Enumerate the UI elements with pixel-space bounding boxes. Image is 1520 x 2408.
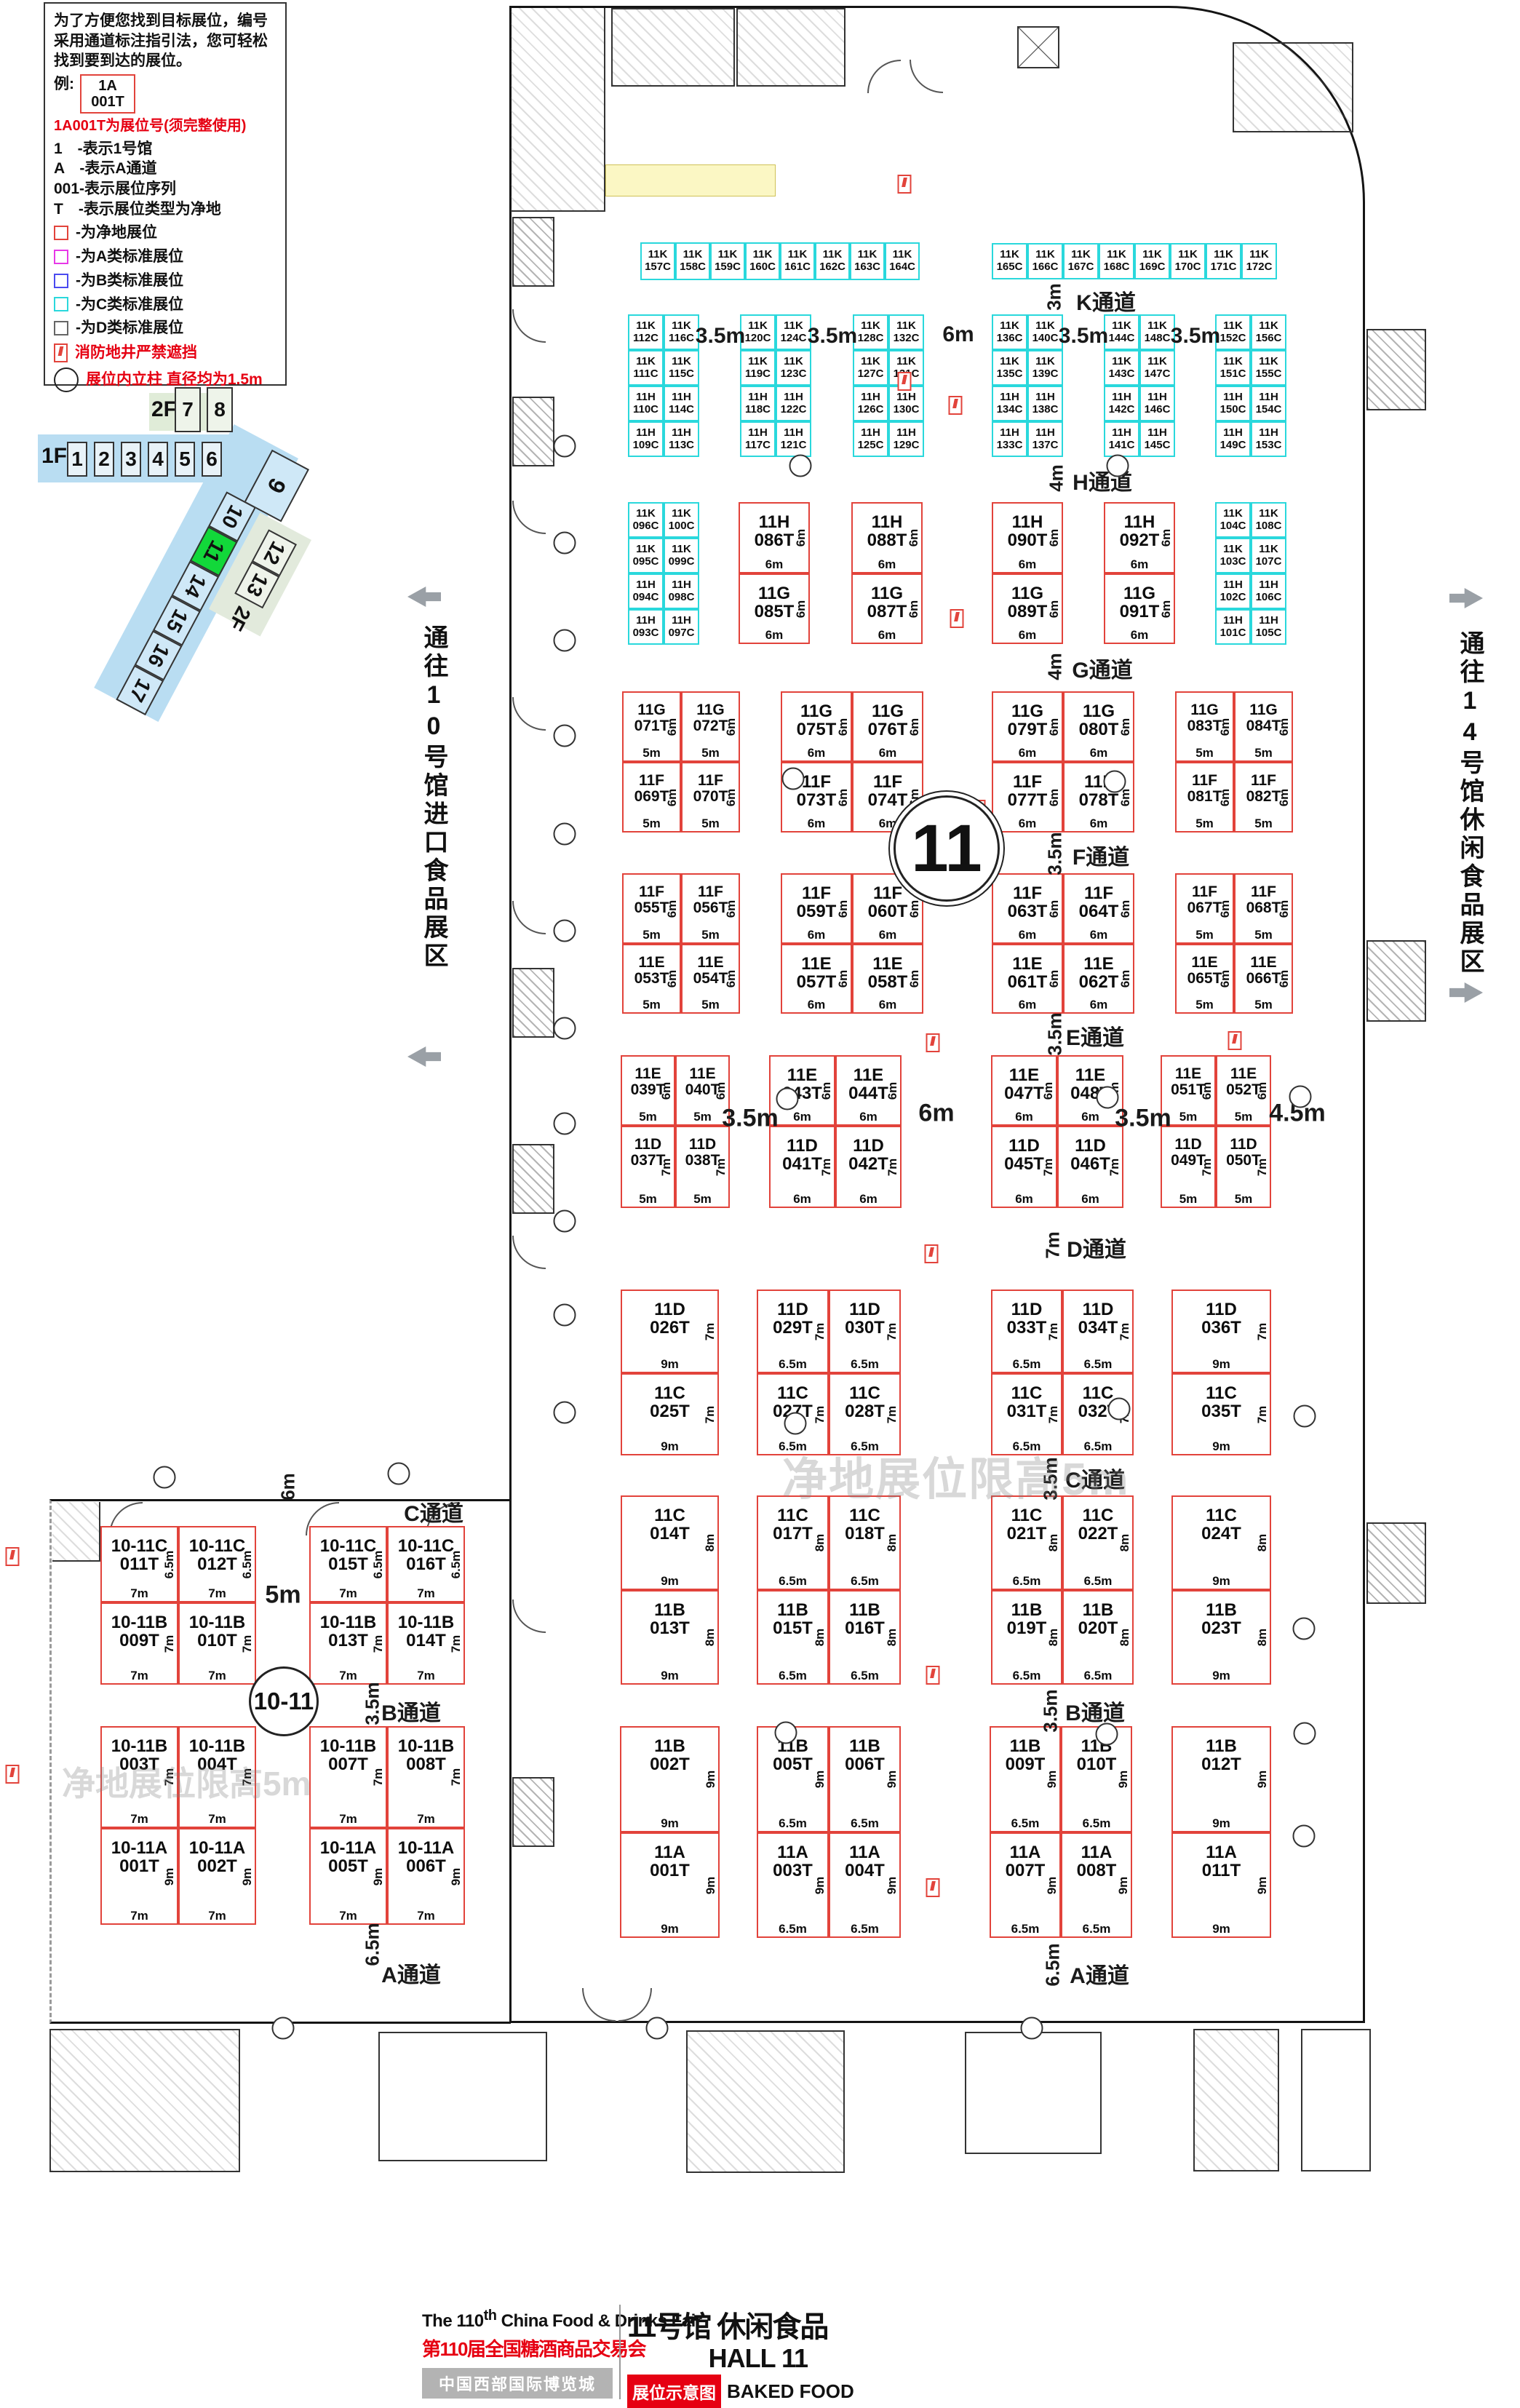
aisle-label-3_5m: 3.5m [1171, 324, 1220, 349]
booth-11H114C: 11H114C [664, 386, 699, 421]
fire-well-icon [6, 1547, 20, 1566]
booth-11K147C: 11K147C [1139, 350, 1175, 386]
booth-11H093C: 11H093C [628, 609, 664, 645]
legend-key-line: T -表示展位类型为净地 [54, 199, 276, 220]
booth-11B009T: 11B009T9m6.5m [990, 1726, 1061, 1832]
booth-11K135C: 11K135C [992, 350, 1027, 386]
pillar-icon [554, 435, 576, 458]
pillar-icon [1293, 1825, 1316, 1848]
booth-11K143C: 11K143C [1104, 350, 1139, 386]
aisle-label-3m: 3m [1043, 283, 1066, 311]
aisle-label-7m: 7m [1042, 1231, 1065, 1259]
booth-11K104C: 11K104C [1215, 502, 1251, 538]
booth-11H090T: 11H090T6m6m [992, 502, 1063, 573]
pillar-icon [776, 1088, 799, 1110]
booth-11H117C: 11H117C [740, 421, 776, 457]
booth-11F064T: 11F064T6m6m [1063, 873, 1134, 944]
pillar-icon [1294, 1722, 1316, 1745]
booth-11B019T: 11B019T8m6.5m [991, 1590, 1062, 1685]
booth-11H118C: 11H118C [740, 386, 776, 421]
booth-11K112C: 11K112C [628, 314, 664, 350]
booth-11D045T: 11D045T7m6m [991, 1126, 1057, 1208]
pillar-icon [388, 1463, 410, 1485]
arrow-right-icon [1449, 982, 1483, 1003]
fire-well-icon [950, 609, 964, 628]
booth-11G079T: 11G079T6m6m [992, 691, 1063, 762]
booth-11K158C: 11K158C [675, 242, 710, 280]
booth-11K103C: 11K103C [1215, 538, 1251, 573]
stairs-right-2 [1366, 940, 1426, 1022]
legend-type-label: -为C类标准展位 [76, 295, 183, 315]
booth-10-11B008T: 10-11B008T7m7m [387, 1726, 465, 1828]
booth-11E047T: 11E047T6m6m [991, 1055, 1057, 1126]
booth-11K127C: 11K127C [853, 350, 888, 386]
minimap-hall-3: 3 [121, 442, 141, 477]
pillar-icon [554, 1210, 576, 1233]
minimap-hall-1: 1 [67, 442, 87, 477]
stairs-left-4 [512, 1144, 554, 1214]
booth-11B023T: 11B023T8m9m [1171, 1590, 1271, 1685]
booth-11K157C: 11K157C [640, 242, 675, 280]
booth-11D026T: 11D026T7m9m [621, 1290, 719, 1373]
fire-well-icon [898, 175, 912, 194]
booth-11H134C: 11H134C [992, 386, 1027, 421]
booth-11E058T: 11E058T6m6m [852, 944, 923, 1014]
legend-type-list: -为净地展位-为A类标准展位-为B类标准展位-为C类标准展位-为D类标准展位 [54, 223, 276, 338]
booth-11K108C: 11K108C [1251, 502, 1286, 538]
pillar-icon [554, 1402, 576, 1424]
booth-11K099C: 11K099C [664, 538, 699, 573]
booth-11H133C: 11H133C [992, 421, 1027, 457]
booth-type-swatch [54, 321, 68, 335]
booth-11H102C: 11H102C [1215, 573, 1251, 609]
title-divider [619, 2305, 621, 2399]
pillar-icon [554, 725, 576, 747]
booth-11H086T: 11H086T6m6m [739, 502, 810, 573]
minimap-hall-6: 6 [202, 442, 222, 477]
fire-well-icon [54, 343, 68, 362]
minimap: 2F 78 1F 123456 9 101114151617 12132F [0, 378, 349, 771]
fire-well-icon [949, 396, 963, 415]
booth-11B005T: 11B005T9m6.5m [757, 1726, 829, 1832]
pillar-icon [789, 455, 812, 477]
booth-11A003T: 11A003T9m6.5m [757, 1832, 829, 1938]
booth-11K164C: 11K164C [885, 242, 920, 280]
title-block: The 110th China Food & Drinks Fair 第110届… [422, 2302, 808, 2405]
booth-11F069T: 11F069T6m5m [622, 762, 681, 833]
wing-toilet [52, 1502, 100, 1562]
booth-11D050T: 11D050T7m5m [1216, 1126, 1271, 1208]
pillar-icon [554, 920, 576, 942]
booth-11H142C: 11H142C [1104, 386, 1139, 421]
booth-11K128C: 11K128C [853, 314, 888, 350]
booth-11H121C: 11H121C [776, 421, 811, 457]
booth-11E053T: 11E053T6m5m [622, 944, 681, 1014]
fire-well-icon [898, 372, 912, 391]
booth-11F082T: 11F082T6m5m [1234, 762, 1293, 833]
booth-11K116C: 11K116C [664, 314, 699, 350]
booth-11G080T: 11G080T6m6m [1063, 691, 1134, 762]
fair-name-en: The 110th China Food & Drinks Fair [422, 2308, 613, 2332]
hall-number-badge: 11 [894, 795, 1000, 902]
reserved-strip [605, 164, 776, 196]
booth-11E052T: 11E052T6m5m [1216, 1055, 1271, 1126]
watermark-main: 净地展位限高5m [782, 1442, 1130, 1508]
booth-11K119C: 11K119C [740, 350, 776, 386]
aisle-label-A通道: A通道 [1070, 1958, 1129, 1990]
booth-11H129C: 11H129C [888, 421, 924, 457]
booth-11K120C: 11K120C [740, 314, 776, 350]
booth-10-11B013T: 10-11B013T7m7m [309, 1602, 387, 1685]
booth-11K165C: 11K165C [992, 243, 1027, 279]
minimap-hall-7: 7 [175, 387, 201, 432]
booth-11G084T: 11G084T6m5m [1234, 691, 1293, 762]
booth-11H106C: 11H106C [1251, 573, 1286, 609]
booth-11F059T: 11F059T6m6m [781, 873, 852, 944]
fire-well-icon [926, 1033, 940, 1052]
fire-well-icon [1228, 1031, 1242, 1050]
booth-11E057T: 11E057T6m6m [781, 944, 852, 1014]
corridor-label-right: 通往14号馆休闲食品展区 [1452, 630, 1488, 977]
booth-11F055T: 11F055T6m5m [622, 873, 681, 944]
booth-11F070T: 11F070T6m5m [681, 762, 740, 833]
pillar-icon [554, 629, 576, 652]
booth-11E062T: 11E062T6m6m [1063, 944, 1134, 1014]
booth-11G085T: 11G085T6m6m [739, 573, 810, 644]
booth-11H137C: 11H137C [1027, 421, 1063, 457]
arrow-left-icon [407, 587, 441, 607]
booth-11D029T: 11D029T7m6.5m [757, 1290, 829, 1373]
floorplan-page: { "legend": { "intro": "为了方便您找到目标展位，编号采用… [0, 0, 1520, 2406]
aisle-label-3_5m: 3.5m [1115, 1105, 1171, 1133]
booth-11K167C: 11K167C [1063, 243, 1099, 279]
aisle-label-6m: 6m [918, 1100, 954, 1128]
legend-type-label: -为净地展位 [76, 223, 157, 243]
booth-11D042T: 11D042T7m6m [835, 1126, 902, 1208]
fair-name-cn: 第110届全国糖酒商品交易会 [422, 2335, 613, 2361]
booth-11H150C: 11H150C [1215, 386, 1251, 421]
legend-example-note: 1A001T为展位号(须完整使用) [54, 116, 276, 135]
booth-11K170C: 11K170C [1170, 243, 1206, 279]
hall-subtitle-en: BAKED FOOD [727, 2380, 854, 2403]
aisle-label-3_5m: 3.5m [1059, 324, 1108, 349]
booth-11H122C: 11H122C [776, 386, 811, 421]
pillar-icon [1104, 771, 1126, 793]
shared-section-badge: 10-11 [249, 1666, 319, 1736]
booth-11K168C: 11K168C [1099, 243, 1134, 279]
legend-type-label: -为A类标准展位 [76, 247, 183, 267]
aisle-label-B通道: B通道 [1065, 1695, 1125, 1727]
booth-10-11A006T: 10-11A006T9m7m [387, 1828, 465, 1925]
booth-11A008T: 11A008T9m6.5m [1061, 1832, 1132, 1938]
booth-10-11C015T: 10-11C015T6.5m7m [309, 1526, 387, 1602]
stairs-right-1 [1366, 329, 1426, 410]
booth-11D037T: 11D037T7m5m [621, 1126, 675, 1208]
booth-11K160C: 11K160C [745, 242, 780, 280]
booth-11A007T: 11A007T9m6.5m [990, 1832, 1061, 1938]
pillar-icon [554, 1017, 576, 1040]
booth-11H113C: 11H113C [664, 421, 699, 457]
example-line2: 001T [91, 94, 124, 110]
booth-10-11C016T: 10-11C016T6.5m7m [387, 1526, 465, 1602]
fire-well-icon [6, 1765, 20, 1784]
pillar-icon [1097, 1086, 1119, 1109]
booth-11K096C: 11K096C [628, 502, 664, 538]
aisle-label-E通道: E通道 [1066, 1020, 1124, 1052]
booth-11H092T: 11H092T6m6m [1104, 502, 1175, 573]
booth-11B016T: 11B016T8m6.5m [829, 1590, 901, 1685]
aisle-label-6m: 6m [277, 1473, 300, 1501]
booth-11K144C: 11K144C [1104, 314, 1139, 350]
booth-11K115C: 11K115C [664, 350, 699, 386]
legend-example-booth: 1A 001T [80, 74, 135, 114]
booth-11F078T: 11F078T6m6m [1063, 762, 1134, 833]
booth-10-11B009T: 10-11B009T7m7m [100, 1602, 178, 1685]
booth-type-swatch [54, 226, 68, 240]
booth-11K140C: 11K140C [1027, 314, 1063, 350]
booth-type-swatch [54, 297, 68, 311]
booth-11G071T: 11G071T6m5m [622, 691, 681, 762]
pillar-icon [554, 532, 576, 555]
corridor-label-left: 通往10号馆进口食品展区 [416, 624, 452, 971]
legend-key-line: 1 -表示1号馆 [54, 139, 276, 159]
aisle-label-D通道: D通道 [1067, 1231, 1126, 1263]
aisle-label-G通道: G通道 [1072, 652, 1132, 684]
booth-11D033T: 11D033T7m6.5m [991, 1290, 1062, 1373]
booth-11C022T: 11C022T8m6.5m [1062, 1495, 1134, 1590]
booth-11F063T: 11F063T6m6m [992, 873, 1063, 944]
legend-type-row: -为净地展位 [54, 223, 276, 243]
pillar-icon [1294, 1405, 1316, 1428]
booth-11F077T: 11F077T6m6m [992, 762, 1063, 833]
top-left-facility [511, 8, 605, 212]
aisle-label-6_5m: 6.5m [1042, 1943, 1065, 1986]
booth-11H126C: 11H126C [853, 386, 888, 421]
aisle-label-K通道: K通道 [1076, 285, 1136, 317]
booth-11K163C: 11K163C [850, 242, 885, 280]
booth-11G072T: 11G072T6m5m [681, 691, 740, 762]
booth-11C035T: 11C035T7m9m [1171, 1373, 1271, 1455]
map-tag: 展位示意图 [627, 2375, 721, 2408]
booth-11H094C: 11H094C [628, 573, 664, 609]
booth-11K169C: 11K169C [1134, 243, 1170, 279]
legend-type-row: -为B类标准展位 [54, 271, 276, 291]
booth-11C025T: 11C025T7m9m [621, 1373, 719, 1455]
legend-key-line: A -表示A通道 [54, 159, 276, 179]
booth-11B013T: 11B013T8m9m [621, 1590, 719, 1685]
booth-11H149C: 11H149C [1215, 421, 1251, 457]
aisle-label-3_5m: 3.5m [1040, 1689, 1062, 1732]
aisle-label-B通道: B通道 [381, 1695, 441, 1727]
stairs-right-3 [1366, 1522, 1426, 1604]
booth-11C014T: 11C014T8m9m [621, 1495, 719, 1590]
legend-type-row: -为C类标准展位 [54, 295, 276, 315]
venue-name: 中国西部国际博览城 [422, 2368, 613, 2399]
booth-11F056T: 11F056T6m5m [681, 873, 740, 944]
legend-key-line: 001-表示展位序列 [54, 179, 276, 199]
elevator [1017, 26, 1059, 68]
booth-11B002T: 11B002T9m9m [620, 1726, 720, 1832]
booth-11K100C: 11K100C [664, 502, 699, 538]
booth-11H097C: 11H097C [664, 609, 699, 645]
minimap-hall-5: 5 [175, 442, 195, 477]
booth-11D038T: 11D038T7m5m [675, 1126, 730, 1208]
facility-bottom-5 [1193, 2029, 1279, 2171]
booth-11C021T: 11C021T8m6.5m [991, 1495, 1062, 1590]
aisle-label-3_5m: 3.5m [362, 1682, 384, 1725]
pillar-icon [272, 2017, 295, 2040]
pillar-icon [154, 1466, 176, 1489]
booth-11H130C: 11H130C [888, 386, 924, 421]
minimap-hall-4: 4 [148, 442, 168, 477]
booth-11H110C: 11H110C [628, 386, 664, 421]
booth-10-11C011T: 10-11C011T6.5m7m [100, 1526, 178, 1602]
aisle-label-5m: 5m [265, 1581, 301, 1610]
booth-11G087T: 11G087T6m6m [851, 573, 923, 644]
aisle-label-3_5m: 3.5m [808, 324, 857, 349]
booth-11H154C: 11H154C [1251, 386, 1286, 421]
aisle-label-4m: 4m [1044, 653, 1067, 680]
minimap-1f-label: 1F [41, 444, 67, 469]
booth-type-swatch [54, 274, 68, 288]
pillar-icon [1289, 1086, 1312, 1108]
fire-well-icon [926, 1878, 940, 1897]
booth-10-11B014T: 10-11B014T7m7m [387, 1602, 465, 1685]
booth-11H145C: 11H145C [1139, 421, 1175, 457]
booth-11H141C: 11H141C [1104, 421, 1139, 457]
stairs-left-2 [512, 397, 554, 466]
booth-11K161C: 11K161C [780, 242, 815, 280]
booth-11E044T: 11E044T6m6m [835, 1055, 902, 1126]
booth-type-swatch [54, 250, 68, 264]
pillar-icon [1293, 1618, 1316, 1640]
top-right-facility [1233, 42, 1353, 132]
booth-11K136C: 11K136C [992, 314, 1027, 350]
booth-11B010T: 11B010T9m6.5m [1061, 1726, 1132, 1832]
stairs-left-5 [512, 1777, 554, 1847]
booth-11E065T: 11E065T6m5m [1175, 944, 1234, 1014]
aisle-label-3_5m: 3.5m [696, 324, 745, 349]
booth-11G083T: 11G083T6m5m [1175, 691, 1234, 762]
legend-example-label: 例: [54, 74, 74, 95]
pillar-icon [1021, 2017, 1043, 2040]
aisle-label-6_5m: 6.5m [362, 1923, 384, 1966]
booth-11K111C: 11K111C [628, 350, 664, 386]
arrow-right-icon [1449, 588, 1483, 608]
facility-bottom-6 [1301, 2029, 1371, 2171]
booth-10-11B010T: 10-11B010T7m7m [178, 1602, 256, 1685]
booth-11K166C: 11K166C [1027, 243, 1063, 279]
booth-11E039T: 11E039T6m5m [621, 1055, 675, 1126]
booth-11K123C: 11K123C [776, 350, 811, 386]
booth-10-11A001T: 10-11A001T9m7m [100, 1828, 178, 1925]
booth-10-11C012T: 10-11C012T6.5m7m [178, 1526, 256, 1602]
pillar-icon [1096, 1723, 1118, 1746]
pillar-icon [1107, 455, 1129, 477]
hall-title-cn: 11号馆 休闲食品 [627, 2303, 808, 2345]
booth-11E054T: 11E054T6m5m [681, 944, 740, 1014]
pillar-icon [784, 1412, 807, 1435]
booth-11K162C: 11K162C [815, 242, 850, 280]
booth-11F067T: 11F067T6m5m [1175, 873, 1234, 944]
booth-11K124C: 11K124C [776, 314, 811, 350]
aisle-label-C通道: C通道 [404, 1495, 463, 1527]
pillar-icon [1108, 1398, 1131, 1420]
aisle-label-3_5m: 3.5m [1044, 832, 1067, 875]
legend-intro: 为了方便您找到目标展位，编号采用通道标注指引法，您可轻松找到要到达的展位。 [54, 11, 276, 71]
booth-11F068T: 11F068T6m5m [1234, 873, 1293, 944]
minimap-hall-8: 8 [207, 387, 233, 432]
booth-11F081T: 11F081T6m5m [1175, 762, 1234, 833]
booth-11H153C: 11H153C [1251, 421, 1286, 457]
booth-11C017T: 11C017T8m6.5m [757, 1495, 829, 1590]
hall-floorplan: 为了方便您找到目标展位，编号采用通道标注指引法，您可轻松找到要到达的展位。 例:… [0, 0, 1520, 2406]
booth-11G089T: 11G089T6m6m [992, 573, 1063, 644]
booth-11B012T: 11B012T9m9m [1171, 1726, 1271, 1832]
booth-11D041T: 11D041T7m6m [769, 1126, 835, 1208]
booth-11K139C: 11K139C [1027, 350, 1063, 386]
pillar-icon [554, 1304, 576, 1327]
pillar-icon [554, 823, 576, 846]
aisle-label-6m: 6m [942, 322, 974, 347]
booth-10-11B007T: 10-11B007T7m7m [309, 1726, 387, 1828]
fire-well-icon [925, 1244, 939, 1263]
booth-11K132C: 11K132C [888, 314, 924, 350]
fire-well-icon [926, 1666, 940, 1685]
booth-11H138C: 11H138C [1027, 386, 1063, 421]
main-hall-outline [509, 6, 1365, 2023]
facility-bottom-2 [378, 2032, 547, 2161]
booth-11G091T: 11G091T6m6m [1104, 573, 1175, 644]
booth-11B006T: 11B006T9m6.5m [829, 1726, 901, 1832]
legend-fire-note: 消防地井严禁遮挡 [75, 343, 197, 363]
booth-11H109C: 11H109C [628, 421, 664, 457]
minimap-hall-2: 2 [94, 442, 114, 477]
booth-11H146C: 11H146C [1139, 386, 1175, 421]
booth-11K148C: 11K148C [1139, 314, 1175, 350]
booth-11K107C: 11K107C [1251, 538, 1286, 573]
legend-type-label: -为D类标准展位 [76, 318, 183, 338]
facility-bottom-4 [965, 2032, 1102, 2154]
aisle-label-4m: 4m [1046, 464, 1068, 492]
booth-11K171C: 11K171C [1206, 243, 1241, 279]
booth-11H098C: 11H098C [664, 573, 699, 609]
booth-11A001T: 11A001T9m9m [620, 1832, 720, 1938]
legend-type-label: -为B类标准展位 [76, 271, 183, 291]
booth-11K155C: 11K155C [1251, 350, 1286, 386]
top-facility-2 [736, 8, 845, 87]
booth-11K172C: 11K172C [1241, 243, 1277, 279]
booth-11H101C: 11H101C [1215, 609, 1251, 645]
hall-title-en: HALL 11 [627, 2345, 808, 2372]
booth-11H088T: 11H088T6m6m [851, 502, 923, 573]
facility-bottom-3 [686, 2030, 845, 2173]
booth-11E061T: 11E061T6m6m [992, 944, 1063, 1014]
booth-11K151C: 11K151C [1215, 350, 1251, 386]
legend-box: 为了方便您找到目标展位，编号采用通道标注指引法，您可轻松找到要到达的展位。 例:… [44, 2, 287, 386]
booth-11D049T: 11D049T7m5m [1161, 1126, 1216, 1208]
stairs-left-3 [512, 968, 554, 1038]
legend-type-row: -为A类标准展位 [54, 247, 276, 267]
aisle-label-3_5m: 3.5m [1044, 1012, 1067, 1055]
booth-11D036T: 11D036T7m9m [1171, 1290, 1271, 1373]
booth-11A004T: 11A004T9m6.5m [829, 1832, 901, 1938]
booth-11D030T: 11D030T7m6.5m [829, 1290, 901, 1373]
booth-11E066T: 11E066T6m5m [1234, 944, 1293, 1014]
booth-11G075T: 11G075T6m6m [781, 691, 852, 762]
booth-11C018T: 11C018T8m6.5m [829, 1495, 901, 1590]
pillar-icon [646, 2017, 669, 2040]
